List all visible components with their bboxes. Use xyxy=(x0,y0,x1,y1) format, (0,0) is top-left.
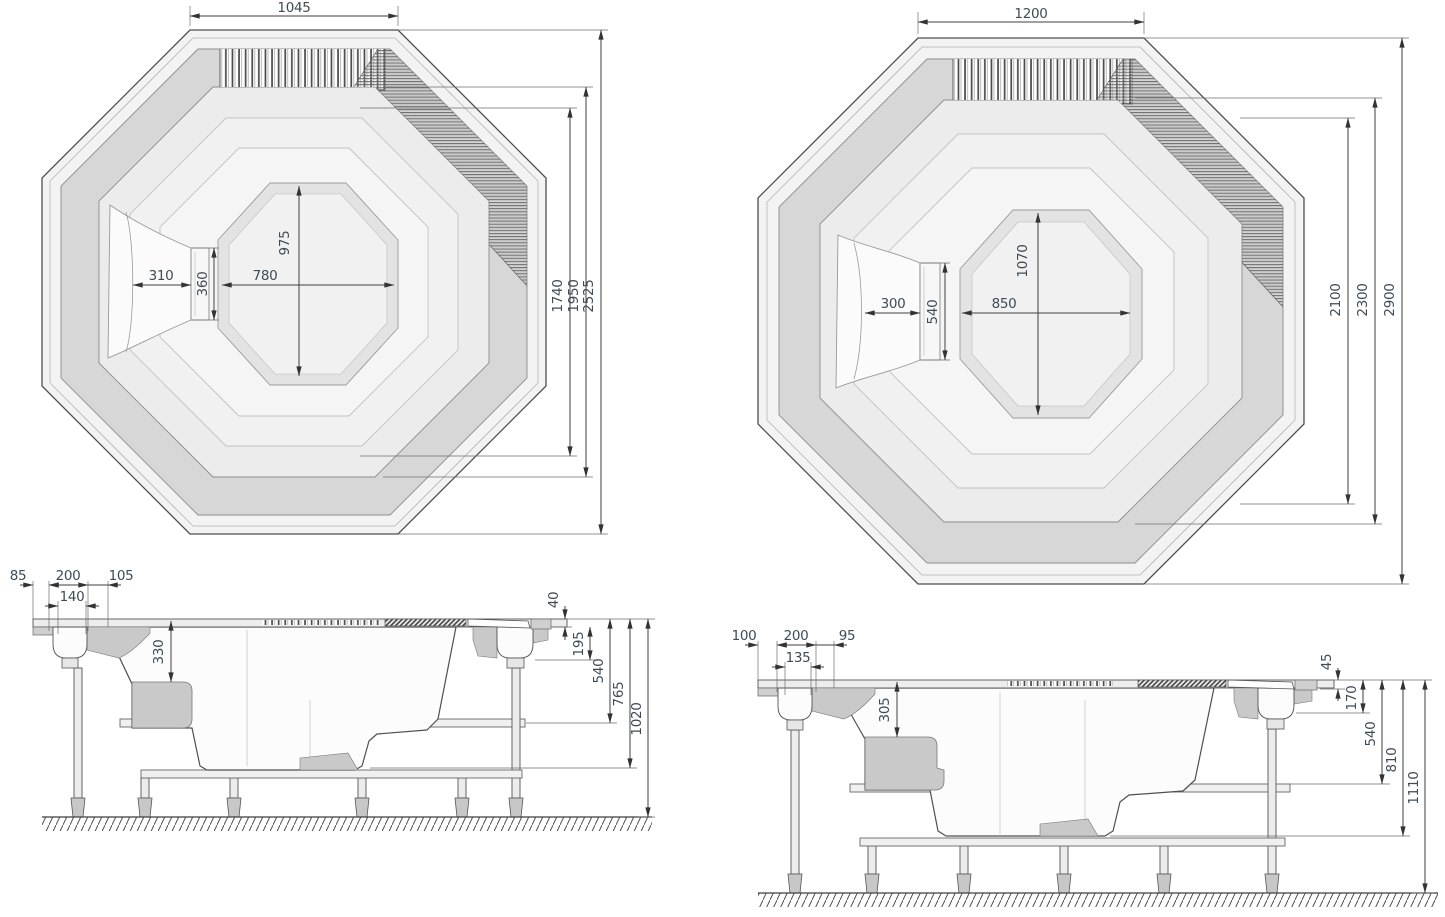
technical-drawing: 975 780 310 360 1045 1740 1950 2525 xyxy=(0,0,1445,917)
plan-view-large-spa: 1070 850 300 540 1200 2100 2300 2900 xyxy=(758,6,1409,584)
side-view-small-spa: 85 200 105 140 330 40 195 540 765 1020 xyxy=(10,568,655,831)
skimmer-stub xyxy=(62,658,78,668)
dim-floor-length-b: 1070 xyxy=(1015,244,1031,277)
dim-width-mid-a: 1950 xyxy=(566,279,582,312)
dim-lip-height-a: 40 xyxy=(546,592,562,609)
dim-width-overall-a: 2525 xyxy=(581,279,597,312)
dim-overall-height-a: 1020 xyxy=(629,702,645,735)
frame-lower-bar xyxy=(141,770,522,778)
frame-lower-bar xyxy=(860,838,1285,846)
leg xyxy=(230,778,238,798)
leg xyxy=(74,668,82,798)
side-view-large-spa: 100 200 95 135 305 45 170 540 810 1110 xyxy=(732,628,1438,907)
skimmer-wedge xyxy=(1294,688,1312,704)
rim-right-block xyxy=(531,619,551,629)
rim-right-block xyxy=(1295,680,1317,690)
skimmer-pocket xyxy=(778,688,812,720)
leg-foot xyxy=(227,798,241,817)
drawing-canvas: 975 780 310 360 1045 1740 1950 2525 xyxy=(0,0,1445,917)
grill-edge-row xyxy=(1006,681,1114,686)
dim-floor-length-a: 975 xyxy=(277,231,293,256)
dim-footwell-a: 310 xyxy=(149,268,174,284)
dim-seat-depth-a: 330 xyxy=(151,640,167,665)
skimmer-stub xyxy=(507,658,524,668)
dim-width-overall-b: 2900 xyxy=(1382,283,1398,316)
dim-skimmer-inner-a: 140 xyxy=(60,589,85,605)
dim-floor-width-b: 850 xyxy=(992,296,1017,312)
leg xyxy=(1160,846,1168,874)
ground-hatch xyxy=(42,817,652,831)
dim-width-mid-b: 2300 xyxy=(1355,283,1371,316)
floor-inner xyxy=(972,222,1130,406)
dim-skimmer-box-a: 200 xyxy=(56,568,81,584)
leg-foot xyxy=(1157,874,1171,893)
skimmer-pocket xyxy=(497,627,533,658)
leg xyxy=(1060,846,1068,874)
leg-foot xyxy=(355,798,369,817)
dim-width-inner-a: 1740 xyxy=(550,279,566,312)
cover-hatch-edge xyxy=(385,619,466,626)
grill-edge-row xyxy=(262,620,380,625)
skimmer-stub xyxy=(787,720,803,730)
leg xyxy=(512,668,520,798)
leg-foot xyxy=(455,798,469,817)
dim-shell-depth-a: 765 xyxy=(611,682,627,707)
floor-inner xyxy=(229,194,387,374)
cover-hatch-edge xyxy=(1138,680,1226,687)
leg-foot xyxy=(1265,874,1279,893)
skimmer-wedge xyxy=(533,627,548,643)
dim-step-a: 360 xyxy=(195,272,211,297)
ground-hatch xyxy=(758,893,1438,907)
plan-view-small-spa: 975 780 310 360 1045 1740 1950 2525 xyxy=(42,0,608,534)
skimmer-stub xyxy=(1267,719,1284,729)
dim-skimmer-inner-b: 135 xyxy=(786,650,811,666)
leg-foot xyxy=(138,798,152,817)
dim-rim-gap-a: 105 xyxy=(109,568,134,584)
leg-foot xyxy=(71,798,85,817)
dim-seat-depth-b: 305 xyxy=(877,698,893,723)
dim-floor-width-a: 780 xyxy=(253,268,278,284)
skimmer-wedge xyxy=(473,627,497,658)
dim-overall-height-b: 1110 xyxy=(1406,771,1422,804)
leg xyxy=(960,846,968,874)
dim-lip-height-b: 45 xyxy=(1319,654,1335,671)
skimmer-wedge xyxy=(1234,688,1258,719)
leg xyxy=(868,846,876,874)
leg-foot xyxy=(1057,874,1071,893)
dim-width-inner-b: 2100 xyxy=(1328,283,1344,316)
dim-skimmer-box-b: 200 xyxy=(784,628,809,644)
dim-rim-overhang-b: 100 xyxy=(732,628,757,644)
dim-shell-depth-b: 810 xyxy=(1384,748,1400,773)
seat-section xyxy=(132,682,192,728)
leg xyxy=(141,778,149,798)
leg-foot xyxy=(957,874,971,893)
leg xyxy=(1268,729,1276,874)
dim-rim-overhang-a: 85 xyxy=(10,568,27,584)
dim-step-b: 540 xyxy=(925,300,941,325)
leg xyxy=(458,778,466,798)
skimmer-pocket xyxy=(1258,688,1294,719)
dim-rim-height-b: 170 xyxy=(1344,686,1360,711)
dim-frame-height-a: 540 xyxy=(591,659,607,684)
leg-foot xyxy=(509,798,523,817)
seat-section xyxy=(865,737,944,790)
leg-foot xyxy=(865,874,879,893)
dim-top-width-b: 1200 xyxy=(1014,6,1047,22)
footwell xyxy=(836,235,920,388)
leg-foot xyxy=(788,874,802,893)
dim-rim-gap-b: 95 xyxy=(839,628,856,644)
dim-footwell-b: 300 xyxy=(881,296,906,312)
dim-frame-height-b: 540 xyxy=(1363,722,1379,747)
leg xyxy=(358,778,366,798)
leg xyxy=(791,730,799,874)
dim-rim-height-a: 195 xyxy=(571,632,587,657)
dim-top-width-a: 1045 xyxy=(277,0,310,16)
